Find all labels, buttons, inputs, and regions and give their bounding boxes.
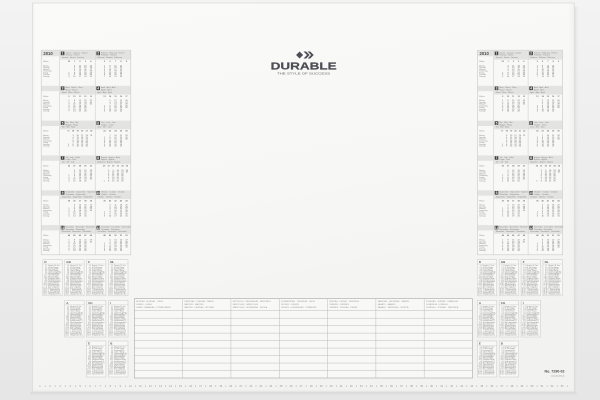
svg-text:SABATO · SÁBADO: SABATO · SÁBADO <box>378 303 396 306</box>
svg-text:SONNTAG · SUNDAY · DIMANCHE: SONNTAG · SUNDAY · DIMANCHE <box>426 300 459 303</box>
svg-text:10: 10 <box>529 191 533 195</box>
svg-text:December · Dezember · December: December · Dezember · December <box>97 230 127 233</box>
svg-text:MERCOLEDÌ · MIÉRCOLES: MERCOLEDÌ · MIÉRCOLES <box>233 303 259 306</box>
svg-text:1: 1 <box>496 52 498 56</box>
svg-text:CH: CH <box>88 301 92 305</box>
svg-text:MARTEDÌ · MARTES: MARTEDÌ · MARTES <box>184 303 204 306</box>
svg-text:Woche: Woche <box>43 131 48 133</box>
svg-text:MARTES · DINSDAG · WTOREK: MARTES · DINSDAG · WTOREK <box>184 306 214 309</box>
svg-text:November · November · November: November · November · November <box>62 230 92 233</box>
svg-text:Februari · Februar · February: Februari · Februar · February <box>530 56 555 59</box>
svg-text:Woche: Woche <box>43 96 48 98</box>
svg-text:Oktober · Oktober · October: Oktober · Oktober · October <box>97 195 121 198</box>
svg-text:E: E <box>88 341 90 345</box>
svg-text:LUNEDÌ · LUNES: LUNEDÌ · LUNES <box>136 303 152 306</box>
svg-text:Heiligabend/C.Eve: Heiligabend/C.Eve <box>92 294 105 296</box>
svg-text:F: F <box>523 260 525 264</box>
svg-text:Woche: Woche <box>43 200 48 202</box>
svg-text:DOMENICA · DOMINGO: DOMENICA · DOMINGO <box>426 303 449 306</box>
svg-text:Heiligabend/C.Eve: Heiligabend/C.Eve <box>527 334 540 336</box>
svg-text:Heiligabend/C.Eve: Heiligabend/C.Eve <box>114 334 127 336</box>
svg-text:2: 2 <box>530 52 532 56</box>
svg-text:THE STYLE OF SUCCESS: THE STYLE OF SUCCESS <box>277 72 330 76</box>
svg-text:Woche: Woche <box>479 235 484 237</box>
svg-text:MITTWOCH · WEDNESDAY · MERCRED: MITTWOCH · WEDNESDAY · MERCREDI <box>233 300 271 303</box>
svg-text:Januari · Januar · January: Januari · Januar · January <box>62 56 84 59</box>
svg-text:5: 5 <box>62 121 64 125</box>
svg-text:5: 5 <box>496 121 498 125</box>
svg-text:JUEVES · DONDERDAG · CZWARTEK: JUEVES · DONDERDAG · CZWARTEK <box>281 306 317 309</box>
svg-text:3: 3 <box>62 86 64 90</box>
svg-text:Heiligabend/C.Eve: Heiligabend/C.Eve <box>505 294 518 296</box>
svg-text:NL: NL <box>110 260 114 264</box>
svg-text:Oktober · Oktober · October: Oktober · Oktober · October <box>530 195 554 198</box>
svg-text:Heiligabend/C.Eve: Heiligabend/C.Eve <box>483 294 496 296</box>
svg-text:7: 7 <box>496 156 498 160</box>
svg-text:GIOVEDÌ · JUEVES: GIOVEDÌ · JUEVES <box>281 303 300 306</box>
svg-text:NL: NL <box>545 260 549 264</box>
svg-text:Maart · März · March: Maart · März · March <box>496 91 514 94</box>
svg-text:Juli · Juli · July: Juli · Juli · July <box>62 162 74 164</box>
svg-text:www.durable.de: www.durable.de <box>551 374 564 377</box>
svg-text:Woche: Woche <box>43 235 48 237</box>
svg-text:11: 11 <box>61 226 65 230</box>
svg-text:September · September · Septem: September · September · September <box>62 195 93 198</box>
svg-text:DOMINGO · ZONDAG · NIEDZIELA: DOMINGO · ZONDAG · NIEDZIELA <box>426 306 459 309</box>
svg-text:Woche: Woche <box>479 96 484 98</box>
svg-text:Heiligabend/C.Eve: Heiligabend/C.Eve <box>483 334 496 336</box>
svg-text:Juni · Juni · June: Juni · Juni · June <box>97 127 111 129</box>
svg-text:Januari · Januar · January: Januari · Januar · January <box>496 56 518 59</box>
svg-text:Woche: Woche <box>479 165 484 167</box>
svg-text:2: 2 <box>97 52 99 56</box>
svg-text:September · September · Septem: September · September · September <box>496 195 527 198</box>
svg-text:DURABLE: DURABLE <box>271 61 337 72</box>
svg-text:9: 9 <box>62 191 64 195</box>
svg-text:No. 7290-02: No. 7290-02 <box>545 370 565 374</box>
svg-text:Woche: Woche <box>43 165 48 167</box>
svg-text:F: F <box>88 260 90 264</box>
svg-text:7: 7 <box>62 156 64 160</box>
svg-text:Heiligabend/C.Eve: Heiligabend/C.Eve <box>70 294 83 296</box>
svg-text:8: 8 <box>97 156 99 160</box>
svg-text:MONTAG · MONDAY · LUNDI: MONTAG · MONDAY · LUNDI <box>136 300 163 303</box>
svg-text:Heiligabend/C.Eve: Heiligabend/C.Eve <box>527 294 540 296</box>
svg-text:4: 4 <box>530 86 532 90</box>
svg-text:4: 4 <box>97 86 99 90</box>
svg-text:VENERDÌ · VIERNES: VENERDÌ · VIERNES <box>329 303 349 306</box>
svg-text:Juli · Juli · July: Juli · Juli · July <box>496 162 508 164</box>
svg-text:2010: 2010 <box>480 51 490 56</box>
svg-text:Mei · Mai · May: Mei · Mai · May <box>496 127 509 129</box>
svg-text:6: 6 <box>530 121 532 125</box>
svg-text:Juni · Juni · June: Juni · Juni · June <box>530 127 544 129</box>
svg-text:Woche: Woche <box>43 61 48 63</box>
svg-text:December · Dezember · December: December · Dezember · December <box>530 230 560 233</box>
svg-text:Augustus · August · August: Augustus · August · August <box>97 161 120 164</box>
svg-text:April · April · April: April · April · April <box>97 91 112 94</box>
svg-text:April · April · April: April · April · April <box>530 91 545 94</box>
svg-text:2010: 2010 <box>43 51 53 56</box>
svg-text:LUNES · MAANDAG · PONIEDZIALEK: LUNES · MAANDAG · PONIEDZIALEK <box>136 306 172 309</box>
svg-text:DIENSTAG · TUESDAY · MARDI: DIENSTAG · TUESDAY · MARDI <box>184 300 214 303</box>
svg-text:Maart · März · March: Maart · März · March <box>62 91 80 94</box>
svg-text:Heiligabend/C.Eve: Heiligabend/C.Eve <box>549 294 562 296</box>
svg-text:12: 12 <box>96 226 100 230</box>
svg-text:Februari · Februar · February: Februari · Februar · February <box>97 56 122 59</box>
svg-text:Heiligabend/C.Eve: Heiligabend/C.Eve <box>48 294 61 296</box>
svg-text:11: 11 <box>495 226 499 230</box>
svg-text:SÁBADO · ZATERDAG · SOBOTA: SÁBADO · ZATERDAG · SOBOTA <box>378 306 409 309</box>
svg-text:November · November · November: November · November · November <box>496 230 526 233</box>
svg-text:Heiligabend/C.Eve: Heiligabend/C.Eve <box>114 294 127 296</box>
svg-text:12: 12 <box>529 226 533 230</box>
svg-text:8: 8 <box>530 156 532 160</box>
svg-text:Augustus · August · August: Augustus · August · August <box>530 161 553 164</box>
svg-text:Heiligabend/C.Eve: Heiligabend/C.Eve <box>505 334 518 336</box>
svg-text:MIÉRCOLES · WOENSDAG · SRODA: MIÉRCOLES · WOENSDAG · SRODA <box>233 306 268 309</box>
svg-text:Woche: Woche <box>479 200 484 202</box>
svg-text:1: 1 <box>62 52 64 56</box>
svg-text:Heiligabend/C.Eve: Heiligabend/C.Eve <box>70 334 83 336</box>
svg-text:6: 6 <box>97 121 99 125</box>
svg-text:SAMSTAG · SATURDAY · SAMEDI: SAMSTAG · SATURDAY · SAMEDI <box>378 300 410 303</box>
svg-text:DONNERSTAG · THURSDAY · JEUDI: DONNERSTAG · THURSDAY · JEUDI <box>281 300 316 303</box>
svg-text:Woche: Woche <box>479 61 484 63</box>
svg-text:E: E <box>479 341 481 345</box>
svg-text:Woche: Woche <box>479 131 484 133</box>
svg-text:3: 3 <box>496 86 498 90</box>
svg-text:10: 10 <box>96 191 100 195</box>
svg-text:FREITAG · FRIDAY · VENDREDI: FREITAG · FRIDAY · VENDREDI <box>329 300 359 303</box>
svg-text:Mei · Mai · May: Mei · Mai · May <box>62 127 75 129</box>
svg-text:9: 9 <box>496 191 498 195</box>
svg-text:VIERNES · VRIJDAG · PIATEK: VIERNES · VRIJDAG · PIATEK <box>329 306 358 309</box>
svg-text:CH: CH <box>501 301 505 305</box>
svg-text:Heiligabend/C.Eve: Heiligabend/C.Eve <box>92 334 105 336</box>
